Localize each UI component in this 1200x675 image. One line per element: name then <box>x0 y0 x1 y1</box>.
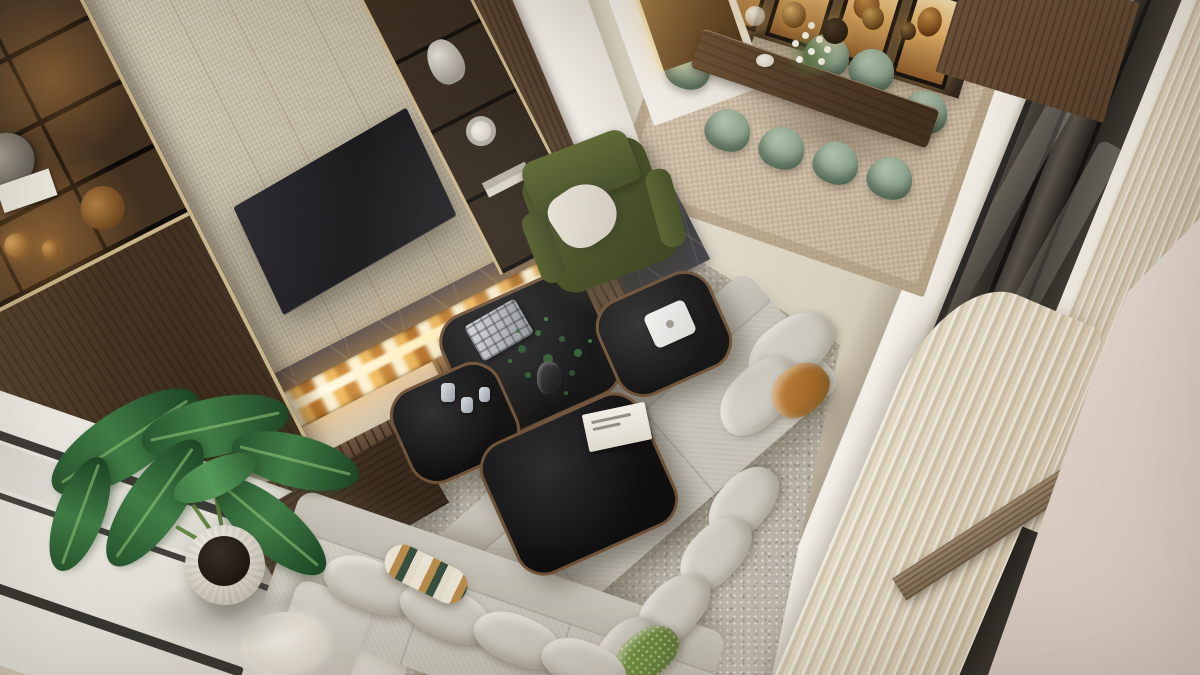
amber-pendant <box>862 6 884 30</box>
dark-vase <box>537 362 561 394</box>
amber-pendant <box>782 2 806 28</box>
table-plant <box>485 310 615 425</box>
glass-decanter <box>479 387 490 402</box>
amber-pendant <box>822 18 848 44</box>
round-sculpture <box>461 111 501 151</box>
ceramic-bowl <box>756 54 774 67</box>
amber-pendant <box>900 22 916 40</box>
tray-dish <box>665 319 676 330</box>
grey-vase <box>420 33 471 89</box>
glass-decanter <box>461 397 473 413</box>
book-text-line <box>593 422 621 431</box>
planter-soil <box>198 536 250 586</box>
book-text-line <box>591 413 631 424</box>
glass-decanter <box>441 383 455 402</box>
white-blooms <box>808 48 815 55</box>
room-aerial-view <box>0 0 1200 675</box>
glass-pendant <box>745 6 765 26</box>
floor-plant <box>20 380 360 675</box>
